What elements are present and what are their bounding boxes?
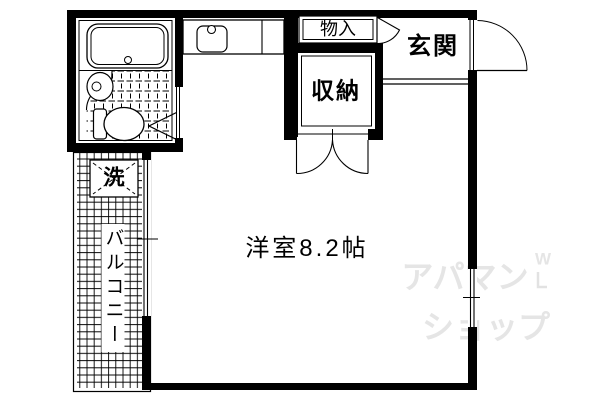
- floorplan-svg: [0, 0, 600, 400]
- main-room-label: 洋室8.2帖: [245, 237, 368, 261]
- storage-door-icon: [378, 18, 400, 44]
- storage-label: 物入: [320, 20, 356, 38]
- entrance-step-edge: [383, 79, 468, 84]
- entrance-door-icon: [468, 20, 527, 71]
- floorplan-page: アパマン ショップ W: [0, 0, 600, 400]
- entrance-label: 玄関: [407, 35, 459, 59]
- closet-label: 収納: [311, 80, 361, 103]
- closet-box: [297, 53, 376, 174]
- kitchen-counter: [183, 20, 284, 54]
- bathtub-icon: [87, 24, 168, 68]
- bathroom-unit: [79, 21, 180, 141]
- wash-basin-icon: [87, 73, 113, 101]
- watermark-logo-l-mark: [538, 272, 547, 287]
- closet-doors-icon: [297, 140, 369, 174]
- washer-label: 洗: [104, 168, 125, 189]
- balcony-label: バルコニー: [102, 224, 125, 352]
- right-window-icon: [463, 269, 480, 327]
- toilet-icon: [94, 108, 145, 141]
